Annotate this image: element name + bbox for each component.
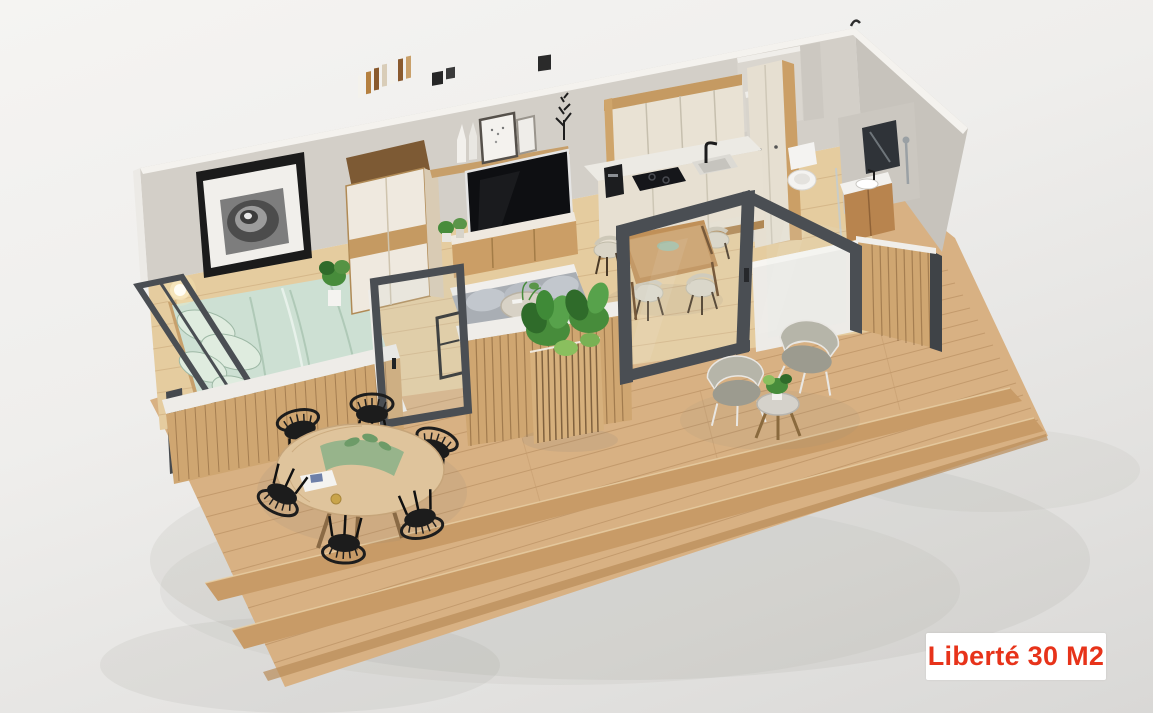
mirror	[862, 120, 900, 174]
corner-post	[930, 250, 942, 352]
area-label-text: Liberté 30 M2	[928, 641, 1104, 672]
books	[358, 56, 411, 98]
picture-frame	[517, 116, 536, 154]
spiral-artwork	[196, 152, 312, 278]
bowl	[331, 494, 341, 504]
area-label: Liberté 30 M2	[926, 633, 1106, 680]
coffee-machine	[604, 164, 624, 198]
console-plant	[453, 218, 467, 230]
console-plant	[438, 221, 454, 235]
door-handle	[392, 358, 396, 369]
render-canvas	[0, 0, 1153, 713]
decor-box	[538, 55, 551, 72]
crane-hook	[851, 21, 860, 26]
door-handle	[744, 268, 749, 282]
bedroom-door	[368, 268, 468, 427]
floorplan-render: Liberté 30 M2	[0, 0, 1153, 713]
picture-frame	[480, 113, 517, 163]
